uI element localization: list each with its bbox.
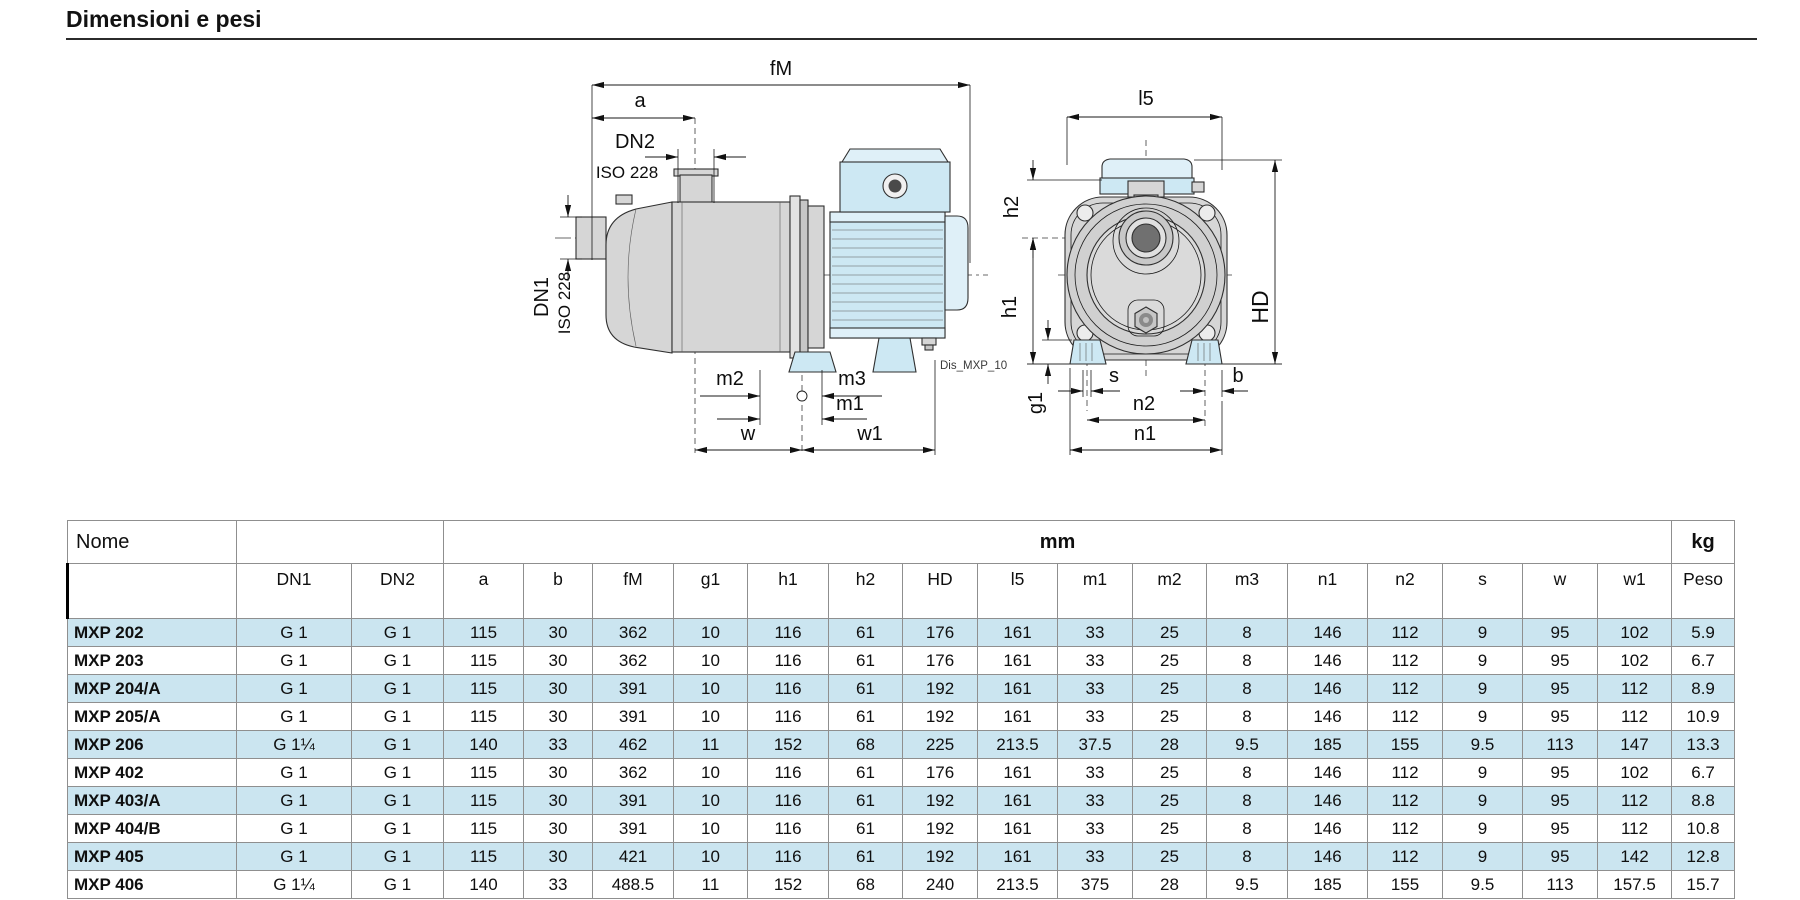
model-name: MXP 406 <box>68 871 237 899</box>
dimension-cell: 95 <box>1523 647 1598 675</box>
dim-label-dn1: DN1 <box>531 277 553 317</box>
dimension-cell: 213.5 <box>978 731 1058 759</box>
dimension-cell: 192 <box>903 675 978 703</box>
model-name: MXP 203 <box>68 647 237 675</box>
dimension-cell: 391 <box>593 703 674 731</box>
dimension-cell: 68 <box>829 731 903 759</box>
dimension-cell: 391 <box>593 787 674 815</box>
dimension-cell: 12.8 <box>1672 843 1735 871</box>
dimension-cell: G 1 <box>352 787 444 815</box>
dim-label-iso228-left: ISO 228 <box>555 272 574 334</box>
dimension-cell: G 1 <box>352 619 444 647</box>
dimension-cell: 116 <box>748 703 829 731</box>
dimension-cell: 9 <box>1443 815 1523 843</box>
dimension-cell: 8 <box>1207 759 1288 787</box>
dimension-cell: 112 <box>1368 843 1443 871</box>
dimension-cell: 115 <box>444 843 524 871</box>
dim-label-w: w <box>740 423 756 445</box>
dimension-cell: 9.5 <box>1207 871 1288 899</box>
dimension-cell: 28 <box>1133 871 1207 899</box>
dimension-cell: 61 <box>829 843 903 871</box>
dimension-cell: 192 <box>903 703 978 731</box>
dimension-cell: 161 <box>978 787 1058 815</box>
dimension-cell: 8 <box>1207 703 1288 731</box>
header-unit-mm: mm <box>444 521 1672 564</box>
dimension-cell: 155 <box>1368 871 1443 899</box>
dimension-cell: 152 <box>748 871 829 899</box>
header-spacer <box>237 521 444 564</box>
dim-label-m2: m2 <box>716 368 744 390</box>
dimension-cell: 5.9 <box>1672 619 1735 647</box>
dimension-cell: 61 <box>829 703 903 731</box>
dimension-cell: 30 <box>524 759 593 787</box>
dimension-cell: 10.8 <box>1672 815 1735 843</box>
dimension-cell: 112 <box>1368 675 1443 703</box>
table-row: MXP 404/BG 1G 11153039110116611921613325… <box>68 815 1735 843</box>
model-name: MXP 404/B <box>68 815 237 843</box>
dimension-cell: 161 <box>978 759 1058 787</box>
table-row: MXP 205/AG 1G 11153039110116611921613325… <box>68 703 1735 731</box>
page-title: Dimensioni e pesi <box>66 6 262 33</box>
side-view: fM a DN2 ISO 228 DN1 ISO 228 <box>531 58 1007 455</box>
dimension-cell: 140 <box>444 731 524 759</box>
dimension-cell: 9.5 <box>1443 731 1523 759</box>
dimension-cell: 8 <box>1207 815 1288 843</box>
dimension-cell: 116 <box>748 787 829 815</box>
dimension-cell: 25 <box>1133 647 1207 675</box>
dimension-cell: 10.9 <box>1672 703 1735 731</box>
dimension-cell: 213.5 <box>978 871 1058 899</box>
dimension-cell: 157.5 <box>1598 871 1672 899</box>
dim-label-m3: m3 <box>838 368 866 390</box>
dimension-cell: 8 <box>1207 619 1288 647</box>
dimension-cell: 30 <box>524 647 593 675</box>
dimension-cell: 362 <box>593 647 674 675</box>
model-name: MXP 403/A <box>68 787 237 815</box>
dimension-cell: 102 <box>1598 647 1672 675</box>
col-h2: h2 <box>829 564 903 619</box>
dimension-cell: 240 <box>903 871 978 899</box>
dimension-cell: 25 <box>1133 703 1207 731</box>
dimension-cell: 116 <box>748 647 829 675</box>
dimension-cell: 146 <box>1288 759 1368 787</box>
dimension-cell: 155 <box>1368 731 1443 759</box>
dimension-cell: 116 <box>748 619 829 647</box>
dimension-cell: 95 <box>1523 703 1598 731</box>
dimension-cell: 112 <box>1368 703 1443 731</box>
dimension-cell: 362 <box>593 619 674 647</box>
dimension-cell: 30 <box>524 787 593 815</box>
dimension-cell: G 1 <box>237 843 352 871</box>
dimension-cell: 30 <box>524 675 593 703</box>
header-unit-kg: kg <box>1672 521 1735 564</box>
dimension-cell: 176 <box>903 759 978 787</box>
dimension-cell: 30 <box>524 703 593 731</box>
dim-label-m1: m1 <box>836 393 864 415</box>
col-m2: m2 <box>1133 564 1207 619</box>
model-name: MXP 405 <box>68 843 237 871</box>
dimension-cell: 10 <box>674 619 748 647</box>
table-row: MXP 402G 1G 1115303621011661176161332581… <box>68 759 1735 787</box>
dimension-cell: 37.5 <box>1058 731 1133 759</box>
dimension-cell: 116 <box>748 843 829 871</box>
dim-label-iso228-top: ISO 228 <box>596 163 658 182</box>
dimension-cell: G 1 <box>237 647 352 675</box>
dimension-cell: 225 <box>903 731 978 759</box>
dimension-cell: 10 <box>674 843 748 871</box>
dimension-cell: 95 <box>1523 619 1598 647</box>
dimension-cell: G 1 <box>352 871 444 899</box>
dimension-cell: 95 <box>1523 815 1598 843</box>
dimension-cell: 146 <box>1288 675 1368 703</box>
model-name: MXP 205/A <box>68 703 237 731</box>
dimension-cell: 9 <box>1443 787 1523 815</box>
dimension-cell: 33 <box>1058 675 1133 703</box>
dimension-cell: 25 <box>1133 619 1207 647</box>
table-row: MXP 403/AG 1G 11153039110116611921613325… <box>68 787 1735 815</box>
dimension-cell: G 1 <box>237 675 352 703</box>
dim-label-n2: n2 <box>1133 393 1155 415</box>
dimension-cell: 161 <box>978 843 1058 871</box>
dimension-cell: 9.5 <box>1443 871 1523 899</box>
header-nome: Nome <box>68 521 237 564</box>
col-peso: Peso <box>1672 564 1735 619</box>
dimension-cell: 185 <box>1288 871 1368 899</box>
dimension-cell: 142 <box>1598 843 1672 871</box>
col-n1: n1 <box>1288 564 1368 619</box>
dimension-cell: 113 <box>1523 731 1598 759</box>
dimension-cell: 112 <box>1368 619 1443 647</box>
model-name: MXP 206 <box>68 731 237 759</box>
dimension-cell: 11 <box>674 871 748 899</box>
dimension-cell: 462 <box>593 731 674 759</box>
dim-label-h2: h2 <box>1001 196 1023 218</box>
dimension-cell: 8 <box>1207 787 1288 815</box>
col-l5: l5 <box>978 564 1058 619</box>
dimension-cell: 33 <box>1058 787 1133 815</box>
dimension-cell: 25 <box>1133 675 1207 703</box>
dimension-cell: 192 <box>903 787 978 815</box>
dimension-cell: 375 <box>1058 871 1133 899</box>
col-m1: m1 <box>1058 564 1133 619</box>
dimension-cell: 95 <box>1523 787 1598 815</box>
dimension-cell: 115 <box>444 647 524 675</box>
dimension-cell: 115 <box>444 703 524 731</box>
header-corner <box>68 564 237 619</box>
dimension-cell: G 1 <box>352 675 444 703</box>
dimension-cell: 116 <box>748 759 829 787</box>
dimension-cell: 116 <box>748 815 829 843</box>
dimension-cell: 112 <box>1368 787 1443 815</box>
dimension-cell: 10 <box>674 787 748 815</box>
dimension-cell: 8 <box>1207 843 1288 871</box>
dimension-cell: 61 <box>829 815 903 843</box>
dim-label-b: b <box>1232 365 1243 387</box>
dimension-cell: 176 <box>903 647 978 675</box>
dimension-cell: 112 <box>1598 815 1672 843</box>
dimension-cell: 61 <box>829 619 903 647</box>
dimension-cell: 115 <box>444 787 524 815</box>
table-row: MXP 206G 1¼G 1140334621115268225213.537.… <box>68 731 1735 759</box>
model-name: MXP 402 <box>68 759 237 787</box>
dimension-cell: G 1 <box>237 759 352 787</box>
dimension-cell: 9 <box>1443 843 1523 871</box>
dimension-cell: 146 <box>1288 619 1368 647</box>
table-row: MXP 406G 1¼G 114033488.51115268240213.53… <box>68 871 1735 899</box>
col-dn1: DN1 <box>237 564 352 619</box>
table-row: MXP 203G 1G 1115303621011661176161332581… <box>68 647 1735 675</box>
dimension-cell: 95 <box>1523 759 1598 787</box>
col-w1: w1 <box>1598 564 1672 619</box>
dimension-cell: 161 <box>978 675 1058 703</box>
dimension-cell: 9 <box>1443 759 1523 787</box>
dimension-cell: 152 <box>748 731 829 759</box>
dimension-cell: 112 <box>1368 815 1443 843</box>
dim-label-h1: h1 <box>999 296 1021 318</box>
dimension-cell: 10 <box>674 647 748 675</box>
dimension-cell: 25 <box>1133 787 1207 815</box>
dimension-cell: 161 <box>978 703 1058 731</box>
dim-label-g1: g1 <box>1025 392 1047 414</box>
table-row: MXP 405G 1G 1115304211011661192161332581… <box>68 843 1735 871</box>
dimension-cell: 192 <box>903 843 978 871</box>
dim-label-a: a <box>634 90 646 112</box>
dimension-cell: 68 <box>829 871 903 899</box>
dimension-cell: 8 <box>1207 675 1288 703</box>
dimension-cell: 140 <box>444 871 524 899</box>
dimension-cell: 28 <box>1133 731 1207 759</box>
dimension-cell: 102 <box>1598 619 1672 647</box>
col-fm: fM <box>593 564 674 619</box>
col-hd: HD <box>903 564 978 619</box>
dimension-cell: 112 <box>1368 759 1443 787</box>
table-body: MXP 202G 1G 1115303621011661176161332581… <box>68 619 1735 899</box>
dimension-cell: 6.7 <box>1672 759 1735 787</box>
dimension-cell: 15.7 <box>1672 871 1735 899</box>
dimension-cell: 10 <box>674 759 748 787</box>
dimension-cell: 10 <box>674 703 748 731</box>
dimension-cell: 161 <box>978 815 1058 843</box>
dimension-cell: 161 <box>978 647 1058 675</box>
dimension-cell: 33 <box>524 731 593 759</box>
dimension-cell: 112 <box>1598 787 1672 815</box>
dimension-cell: 192 <box>903 815 978 843</box>
dimension-cell: 146 <box>1288 843 1368 871</box>
dimension-cell: 391 <box>593 815 674 843</box>
dimension-cell: G 1 <box>237 619 352 647</box>
col-a: a <box>444 564 524 619</box>
dimension-cell: G 1 <box>352 703 444 731</box>
dimension-cell: 488.5 <box>593 871 674 899</box>
table-header-units: Nome mm kg <box>68 521 1735 564</box>
dimension-cell: 33 <box>1058 815 1133 843</box>
dim-label-hd: HD <box>1247 290 1273 323</box>
col-n2: n2 <box>1368 564 1443 619</box>
table-header-columns: DN1 DN2 a b fM g1 h1 h2 HD l5 m1 m2 m3 n… <box>68 564 1735 619</box>
dimension-cell: 113 <box>1523 871 1598 899</box>
dimension-cell: G 1 <box>352 731 444 759</box>
dimension-cell: 115 <box>444 675 524 703</box>
dimension-cell: 33 <box>1058 647 1133 675</box>
dimension-cell: G 1 <box>352 843 444 871</box>
technical-drawing: fM a DN2 ISO 228 DN1 ISO 228 <box>430 45 1330 465</box>
dimension-cell: G 1 <box>237 787 352 815</box>
dimension-cell: 95 <box>1523 675 1598 703</box>
table-row: MXP 202G 1G 1115303621011661176161332581… <box>68 619 1735 647</box>
dimension-cell: 33 <box>524 871 593 899</box>
dimension-cell: 25 <box>1133 759 1207 787</box>
dimension-cell: 115 <box>444 619 524 647</box>
dim-label-dn2: DN2 <box>615 131 655 153</box>
dimension-cell: 146 <box>1288 703 1368 731</box>
col-h1: h1 <box>748 564 829 619</box>
dimension-cell: 9 <box>1443 647 1523 675</box>
dimension-cell: 30 <box>524 843 593 871</box>
title-rule <box>66 38 1757 40</box>
dimension-cell: 102 <box>1598 759 1672 787</box>
dim-label-s: s <box>1109 365 1119 387</box>
dimension-cell: 95 <box>1523 843 1598 871</box>
dimension-cell: 13.3 <box>1672 731 1735 759</box>
dimension-cell: 161 <box>978 619 1058 647</box>
dimension-cell: 421 <box>593 843 674 871</box>
dimension-cell: 112 <box>1368 647 1443 675</box>
dimension-cell: 9 <box>1443 619 1523 647</box>
col-m3: m3 <box>1207 564 1288 619</box>
dimension-cell: 25 <box>1133 843 1207 871</box>
dimension-cell: 30 <box>524 815 593 843</box>
col-b: b <box>524 564 593 619</box>
dimension-cell: 116 <box>748 675 829 703</box>
dimension-cell: 25 <box>1133 815 1207 843</box>
dimension-cell: 61 <box>829 759 903 787</box>
dimension-cell: 362 <box>593 759 674 787</box>
drawing-caption: Dis_MXP_10 <box>940 360 1007 372</box>
dimension-cell: G 1¼ <box>237 871 352 899</box>
dimension-cell: 11 <box>674 731 748 759</box>
dimension-cell: 8 <box>1207 647 1288 675</box>
dimension-cell: 8.8 <box>1672 787 1735 815</box>
dimension-cell: 6.7 <box>1672 647 1735 675</box>
dimension-cell: 9.5 <box>1207 731 1288 759</box>
dimension-cell: 112 <box>1598 675 1672 703</box>
col-s: s <box>1443 564 1523 619</box>
dimension-cell: 9 <box>1443 675 1523 703</box>
dim-label-n1: n1 <box>1134 423 1156 445</box>
front-view: l5 h2 h1 g1 s b n2 <box>999 88 1282 455</box>
dimension-cell: 33 <box>1058 703 1133 731</box>
dimension-cell: 112 <box>1598 703 1672 731</box>
col-dn2: DN2 <box>352 564 444 619</box>
table-row: MXP 204/AG 1G 11153039110116611921613325… <box>68 675 1735 703</box>
dimension-cell: 33 <box>1058 759 1133 787</box>
dimension-cell: 61 <box>829 675 903 703</box>
dimension-cell: G 1 <box>352 815 444 843</box>
dimension-cell: G 1 <box>352 759 444 787</box>
dimension-cell: 61 <box>829 647 903 675</box>
model-name: MXP 204/A <box>68 675 237 703</box>
dimension-cell: G 1 <box>352 647 444 675</box>
dimension-cell: 30 <box>524 619 593 647</box>
dimension-cell: 9 <box>1443 703 1523 731</box>
dimension-cell: 146 <box>1288 647 1368 675</box>
dimension-cell: 146 <box>1288 787 1368 815</box>
dimension-cell: 33 <box>1058 843 1133 871</box>
catalog-page: Dimensioni e pesi <box>0 0 1800 900</box>
dim-label-l5: l5 <box>1138 88 1154 110</box>
dimensions-table: Nome mm kg DN1 DN2 a b fM g1 h1 h2 HD l5… <box>66 520 1735 899</box>
dimension-cell: 115 <box>444 815 524 843</box>
dimension-cell: G 1 <box>237 703 352 731</box>
dimension-cell: 10 <box>674 815 748 843</box>
dim-label-fm: fM <box>770 58 792 80</box>
col-g1: g1 <box>674 564 748 619</box>
dimension-cell: 147 <box>1598 731 1672 759</box>
dimension-cell: 391 <box>593 675 674 703</box>
dimension-cell: 146 <box>1288 815 1368 843</box>
dimension-cell: 8.9 <box>1672 675 1735 703</box>
dimension-cell: 10 <box>674 675 748 703</box>
dimension-cell: 176 <box>903 619 978 647</box>
dimension-cell: G 1¼ <box>237 731 352 759</box>
model-name: MXP 202 <box>68 619 237 647</box>
col-w: w <box>1523 564 1598 619</box>
dimension-cell: 115 <box>444 759 524 787</box>
dimension-cell: 33 <box>1058 619 1133 647</box>
dim-label-w1: w1 <box>856 423 883 445</box>
dimension-cell: 61 <box>829 787 903 815</box>
dimension-cell: 185 <box>1288 731 1368 759</box>
dimension-cell: G 1 <box>237 815 352 843</box>
